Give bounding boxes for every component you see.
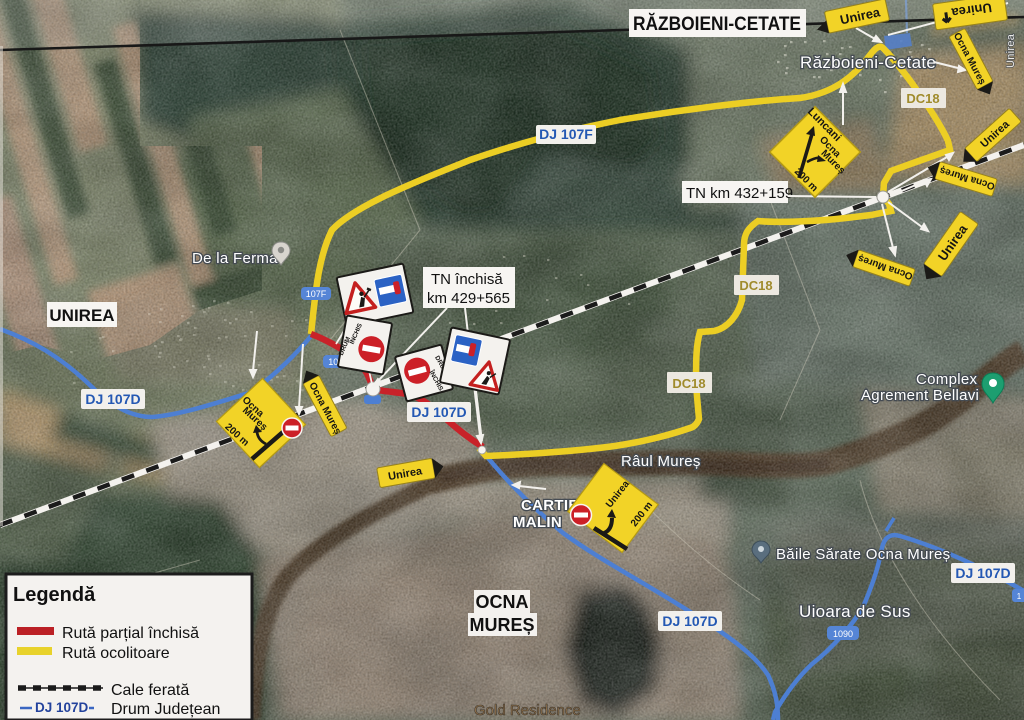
svg-text:DC18: DC18 [672,376,705,391]
svg-text:UNIREA: UNIREA [49,306,114,325]
svg-text:Rută ocolitoare: Rută ocolitoare [62,645,170,662]
svg-text:DJ 107D: DJ 107D [85,391,140,407]
svg-text:Drum Județean: Drum Județean [111,701,220,718]
svg-text:Uioara de Sus: Uioara de Sus [799,602,911,621]
svg-text:DJ 107D: DJ 107D [35,700,89,715]
svg-text:MUREȘ: MUREȘ [469,615,534,635]
svg-text:OCNA: OCNA [476,592,529,612]
svg-text:RĂZBOIENI-CETATE: RĂZBOIENI-CETATE [633,13,801,35]
svg-text:Râul Mureș: Râul Mureș [621,453,701,470]
svg-text:Agrement Bellavi: Agrement Bellavi [861,387,979,404]
svg-text:Legendă: Legendă [13,584,96,606]
svg-text:DJ 107D: DJ 107D [955,565,1010,581]
svg-text:Gold Residence: Gold Residence [474,702,581,719]
svg-text:Cale ferată: Cale ferată [111,682,189,699]
svg-text:DC18: DC18 [739,278,772,293]
svg-text:De la Ferma: De la Ferma [192,250,278,267]
svg-text:1090: 1090 [833,629,853,639]
svg-text:Războieni-Cetate: Războieni-Cetate [800,53,936,72]
svg-text:Unirea: Unirea [1005,33,1017,68]
svg-text:MALIN: MALIN [513,514,562,531]
svg-text:DJ 107D: DJ 107D [411,404,466,420]
svg-text:107F: 107F [306,289,327,299]
svg-text:Complex: Complex [916,371,977,388]
svg-text:DJ 107D: DJ 107D [662,613,717,629]
svg-text:Rută parțial închisă: Rută parțial închisă [62,625,199,642]
svg-text:TN km 432+159: TN km 432+159 [686,185,793,202]
svg-text:Băile Sărate Ocna Mureș: Băile Sărate Ocna Mureș [776,546,950,563]
svg-text:DJ 107F: DJ 107F [539,126,593,142]
svg-text:km 429+565: km 429+565 [427,290,510,307]
svg-text:DC18: DC18 [906,91,939,106]
svg-text:1: 1 [1017,592,1022,601]
svg-text:TN închisă: TN închisă [431,271,503,288]
